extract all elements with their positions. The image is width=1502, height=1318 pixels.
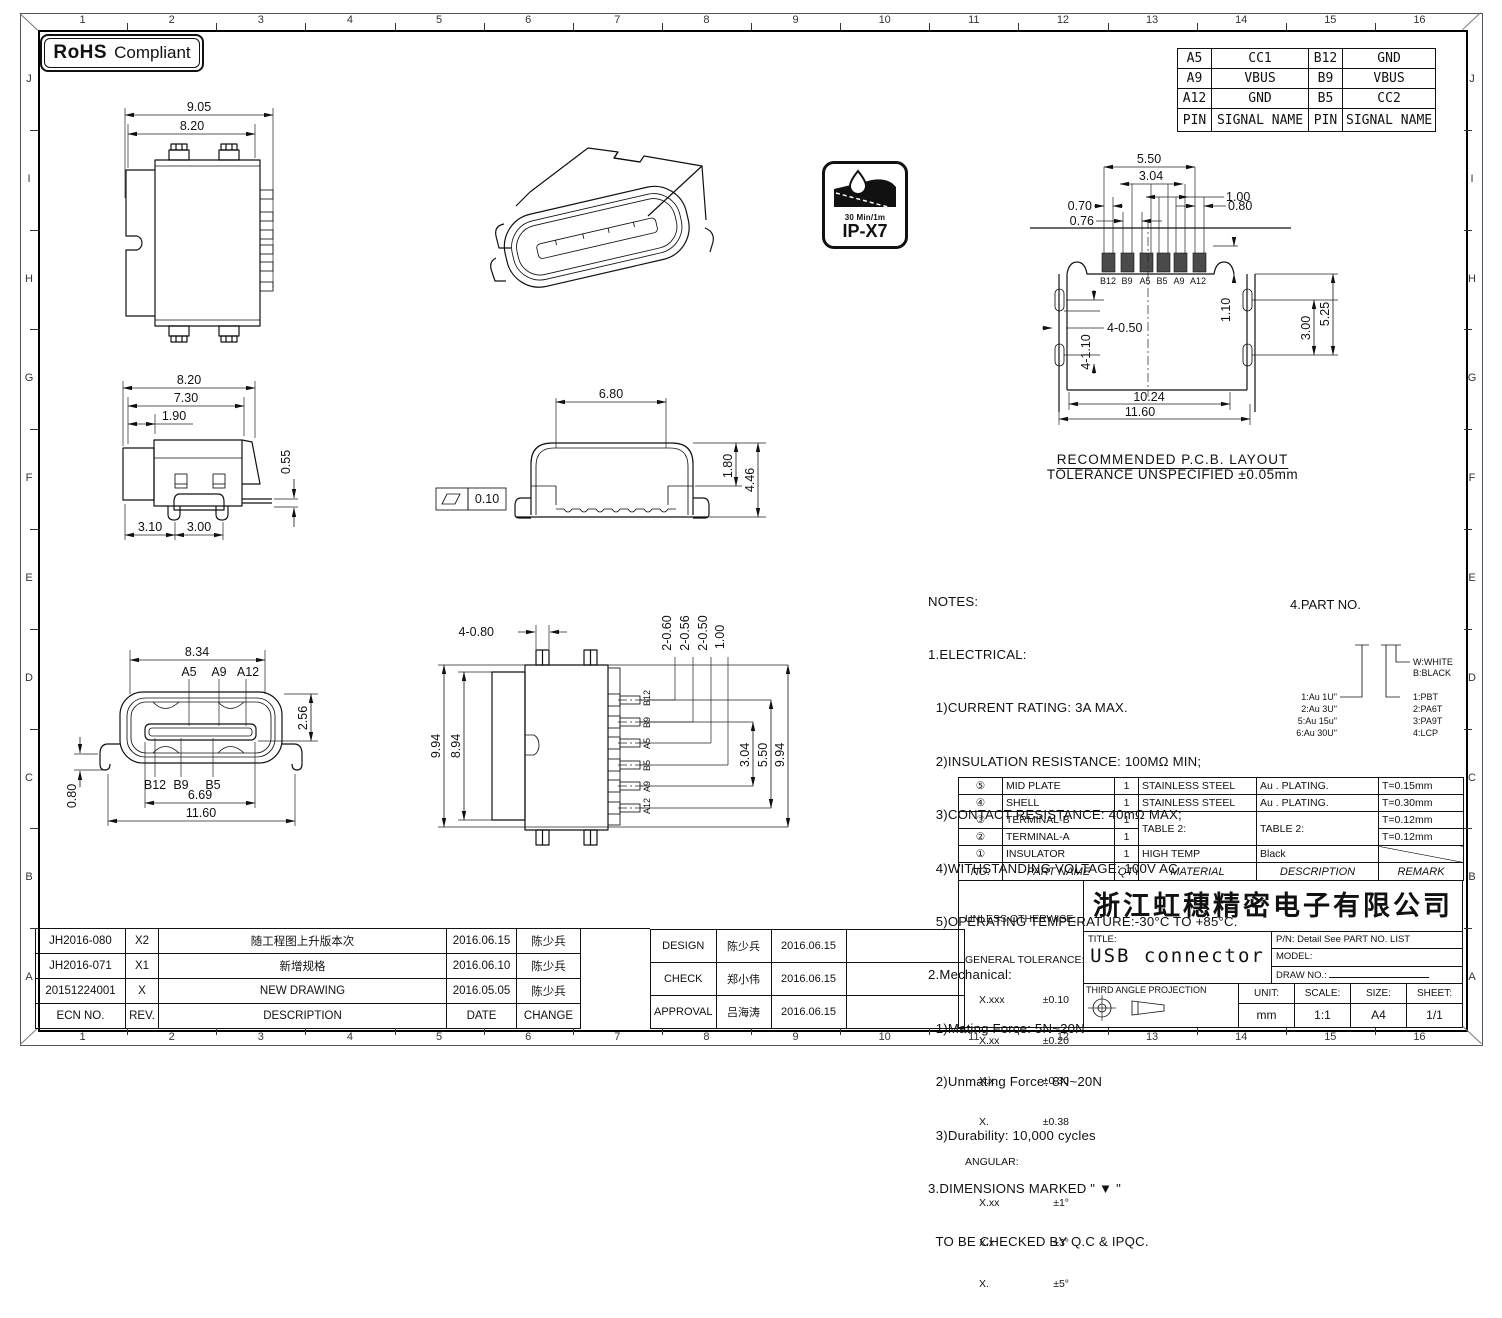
approval-table: DESIGN陈少兵2016.06.15 CHECK郑小伟2016.06.15 A…	[650, 929, 965, 1029]
pad-label: B12	[1100, 276, 1116, 286]
zone-tick	[1375, 1028, 1376, 1035]
draw-no-row: DRAW NO.:	[1272, 967, 1462, 983]
bom-remark: T=0.12mm	[1379, 829, 1464, 846]
approval-name: 郑小伟	[716, 963, 771, 996]
bom-material: TABLE 2:	[1139, 812, 1257, 846]
bom-header: NO.	[959, 863, 1003, 881]
tol-key: X.xxx	[979, 994, 1005, 1008]
dim-label: 2-0.60	[660, 615, 674, 650]
zone-number-bottom: 4	[341, 1031, 359, 1043]
rev-desc: 随工程图上升版本次	[159, 929, 447, 954]
zone-tick	[840, 23, 841, 30]
dim-label: 8.20	[177, 373, 201, 387]
dim-label: 3.10	[138, 520, 162, 534]
tol-val: ±1°	[1053, 1197, 1069, 1211]
pin-header: SIGNAL NAME	[1343, 109, 1436, 132]
pin-cell: B9	[1309, 69, 1343, 89]
dim-label: 2-0.56	[678, 615, 692, 650]
rev-desc: 新增规格	[159, 954, 447, 979]
rev-header: CHANGE	[517, 1004, 581, 1029]
approval-role: CHECK	[651, 963, 717, 996]
zone-tick	[30, 928, 38, 929]
zone-number-top: 1	[74, 14, 92, 26]
pin-cell: B12	[1309, 49, 1343, 69]
bom-header: REMARK	[1379, 863, 1464, 881]
zone-letter-right: A	[1463, 971, 1481, 983]
pin-header: PIN	[1178, 109, 1212, 132]
bom-part: TERMINAL-B	[1003, 812, 1115, 829]
pin-cell: A12	[1178, 89, 1212, 109]
zone-tick	[305, 1028, 306, 1035]
zone-tick	[573, 23, 574, 30]
ip-rating-label: IP-X7	[825, 222, 905, 240]
bom-material: STAINLESS STEEL	[1139, 795, 1257, 812]
zone-number-bottom: 10	[876, 1031, 894, 1043]
dim-label: 5.25	[1318, 302, 1332, 326]
pcb-layout-drawing: 5.50 3.04 1.00 0.70 0.80 0.76 1.10 4-0.5…	[1028, 142, 1393, 452]
bom-desc: Au . PLATING.	[1257, 795, 1379, 812]
bottom-view-drawing: 4-0.80 9.94 8.94 2-0.60 2-0.56 2-0.50 1.…	[428, 575, 793, 867]
dim-label: 4.46	[743, 468, 757, 492]
dim-label: 3.04	[738, 743, 752, 767]
zone-number-top: 11	[965, 14, 983, 26]
zone-tick	[305, 23, 306, 30]
rev-change: 陈少兵	[517, 929, 581, 954]
zone-tick	[1197, 1028, 1198, 1035]
legend-item: 6:Au 30U"	[1296, 728, 1337, 738]
size-value: A4	[1351, 1004, 1406, 1026]
zone-number-top: 13	[1143, 14, 1161, 26]
zone-number-bottom: 14	[1232, 1031, 1250, 1043]
tol-key: X.x	[979, 1075, 994, 1089]
zone-letter-right: H	[1463, 273, 1481, 285]
size-cell: SIZE: A4	[1351, 984, 1407, 1027]
zone-tick	[1464, 329, 1472, 330]
scale-value: 1:1	[1295, 1004, 1350, 1026]
zone-tick	[484, 1028, 485, 1035]
legend-item: 5:Au 15u"	[1298, 716, 1337, 726]
bom-part: INSULATOR	[1003, 846, 1115, 863]
dim-label: 1.90	[162, 409, 186, 423]
scale-cell: SCALE: 1:1	[1295, 984, 1351, 1027]
title-cell: TITLE: USB connector	[1084, 932, 1272, 983]
pin-label: B12	[642, 690, 652, 706]
pin-cell: VBUS	[1343, 69, 1436, 89]
zone-number-top: 6	[519, 14, 537, 26]
projection-label: THIRD ANGLE PROJECTION	[1086, 985, 1236, 995]
zone-number-top: 9	[787, 14, 805, 26]
dim-label: 10.24	[1133, 390, 1164, 404]
rev-ecn: 20151224001	[36, 979, 126, 1004]
part-no-title: 4.PART NO.	[1290, 597, 1361, 612]
dim-label: 9.05	[187, 100, 211, 114]
zone-letter-left: C	[20, 772, 38, 784]
rev-desc: NEW DRAWING	[159, 979, 447, 1004]
rohs-badge: RoHS Compliant	[40, 34, 204, 72]
bom-header: QTY	[1115, 863, 1139, 881]
zone-letter-left: F	[20, 472, 38, 484]
zone-tick	[216, 1028, 217, 1035]
zone-tick	[1464, 529, 1472, 530]
pad-label: A5	[1139, 276, 1150, 286]
pin-label: B9	[642, 717, 652, 728]
zone-number-top: 16	[1410, 14, 1428, 26]
dim-label: 0.80	[1228, 199, 1252, 213]
approval-empty	[846, 963, 964, 996]
bom-desc: Black	[1257, 846, 1379, 863]
approval-empty	[846, 996, 964, 1029]
pin-label: A9	[642, 781, 652, 792]
drawing-title: USB connector	[1088, 945, 1267, 967]
part-number-note: P/N: Detail See PART NO. LIST	[1272, 932, 1462, 949]
table-top-rule	[580, 928, 650, 929]
zone-tick	[30, 329, 38, 330]
unit-value: mm	[1239, 1004, 1294, 1026]
rev-ecn: JH2016-071	[36, 954, 126, 979]
zone-tick	[929, 1028, 930, 1035]
pin-cell: CC1	[1212, 49, 1309, 69]
note-line: 1.ELECTRICAL:	[928, 646, 1238, 664]
zone-number-bottom: 11	[965, 1031, 983, 1043]
bom-remark: T=0.12mm	[1379, 812, 1464, 829]
rev-ecn: JH2016-080	[36, 929, 126, 954]
zone-tick	[929, 23, 930, 30]
dim-label: 11.60	[186, 806, 216, 820]
pin-header: PIN	[1309, 109, 1343, 132]
dim-label: 0.55	[279, 450, 293, 474]
zone-number-bottom: 5	[430, 1031, 448, 1043]
sheet-value: 1/1	[1407, 1004, 1462, 1026]
zone-tick	[30, 629, 38, 630]
approval-role: DESIGN	[651, 930, 717, 963]
zone-letter-right: I	[1463, 173, 1481, 185]
bom-material: HIGH TEMP	[1139, 846, 1257, 863]
pin-label: B5	[642, 760, 652, 771]
zone-number-bottom: 1	[74, 1031, 92, 1043]
zone-tick	[30, 729, 38, 730]
zone-number-top: 7	[608, 14, 626, 26]
zone-tick	[1464, 429, 1472, 430]
rev-change: 陈少兵	[517, 954, 581, 979]
bom-part: MID PLATE	[1003, 778, 1115, 795]
zone-tick	[30, 130, 38, 131]
tol-key: X.x	[979, 1237, 994, 1251]
bom-header: MATERIAL	[1139, 863, 1257, 881]
bom-no: ④	[959, 795, 1003, 812]
zone-tick	[216, 23, 217, 30]
pin-header: SIGNAL NAME	[1212, 109, 1309, 132]
zone-letter-left: G	[20, 372, 38, 384]
bom-table: ⑤MID PLATE1STAINLESS STEELAu . PLATING.T…	[958, 777, 1464, 881]
dim-label: 3.00	[1299, 316, 1313, 340]
legend-item: 1:PBT	[1413, 692, 1439, 702]
rev-date: 2016.06.15	[447, 929, 517, 954]
rev-header: REV.	[126, 1004, 159, 1029]
pin-label: A5	[642, 738, 652, 749]
zone-number-top: 3	[252, 14, 270, 26]
zone-number-bottom: 9	[787, 1031, 805, 1043]
zone-letter-left: A	[20, 971, 38, 983]
pcb-caption-title: RECOMMENDED P.C.B. LAYOUT	[1000, 452, 1345, 467]
pad-label: A9	[1173, 276, 1184, 286]
bom-remark: T=0.15mm	[1379, 778, 1464, 795]
zone-number-top: 14	[1232, 14, 1250, 26]
dim-label: 4-0.80	[459, 625, 494, 639]
third-angle-projection-icon	[1086, 995, 1176, 1021]
dim-label: 1.00	[713, 625, 727, 649]
rev-header: ECN NO.	[36, 1004, 126, 1029]
pcb-layout-caption: RECOMMENDED P.C.B. LAYOUT TOLERANCE UNSP…	[1000, 452, 1345, 482]
tolerance-block: UNLESS OTHERWISE, GENERAL TOLERANCE: X.x…	[959, 881, 1084, 1027]
dim-label: 9.94	[429, 734, 443, 758]
zone-tick	[1108, 23, 1109, 30]
pin-cell: B5	[1309, 89, 1343, 109]
zone-tick	[1464, 729, 1472, 730]
zone-tick	[662, 1028, 663, 1035]
zone-tick	[30, 429, 38, 430]
tolerance-angular-label: ANGULAR:	[965, 1156, 1079, 1170]
zone-tick	[395, 1028, 396, 1035]
tolerance-header: GENERAL TOLERANCE:	[965, 954, 1079, 968]
zone-letter-right: G	[1463, 372, 1481, 384]
revision-table: JH2016-080X2随工程图上升版本次2016.06.15陈少兵 JH201…	[35, 928, 581, 1029]
bom-header: PART NAME	[1003, 863, 1115, 881]
legend-item: W:WHITE	[1413, 657, 1453, 667]
bom-no: ②	[959, 829, 1003, 846]
dim-label: 4-0.50	[1107, 321, 1142, 335]
note-line: 1)CURRENT RATING: 3A MAX.	[928, 699, 1238, 717]
rev-rev: X	[126, 979, 159, 1004]
tol-val: ±0.38	[1043, 1116, 1069, 1130]
pcb-caption-subtitle: TOLERANCE UNSPECIFIED ±0.05mm	[1000, 467, 1345, 482]
bom-material: STAINLESS STEEL	[1139, 778, 1257, 795]
bom-qty: 1	[1115, 795, 1139, 812]
zone-number-bottom: 2	[163, 1031, 181, 1043]
zone-tick	[30, 230, 38, 231]
dim-label: 6.80	[599, 387, 623, 401]
zone-tick	[1464, 828, 1472, 829]
zone-number-top: 2	[163, 14, 181, 26]
dim-label: 1.10	[1219, 298, 1233, 322]
legend-item: 3:PA9T	[1413, 716, 1443, 726]
zone-tick	[573, 1028, 574, 1035]
bom-qty: 1	[1115, 846, 1139, 863]
zone-tick	[751, 23, 752, 30]
legend-item: 2:Au 3U"	[1301, 704, 1337, 714]
dim-label: 11.60	[1125, 405, 1155, 419]
dim-label: 0.70	[1068, 199, 1092, 213]
zone-tick	[1464, 130, 1472, 131]
zone-number-top: 8	[697, 14, 715, 26]
approval-role: APPROVAL	[651, 996, 717, 1029]
isometric-view-drawing	[468, 132, 733, 304]
pin-label: A12	[237, 665, 259, 679]
zone-tick	[127, 1028, 128, 1035]
zone-letter-right: D	[1463, 672, 1481, 684]
bom-part: SHELL	[1003, 795, 1115, 812]
zone-tick	[1464, 230, 1472, 231]
bom-desc: TABLE 2:	[1257, 812, 1379, 846]
ipx7-badge: 30 Min/1m IP-X7	[822, 161, 908, 249]
zone-number-top: 15	[1321, 14, 1339, 26]
dim-label: 5.50	[756, 743, 770, 767]
zone-tick	[484, 23, 485, 30]
zone-letter-left: D	[20, 672, 38, 684]
approval-date: 2016.06.15	[771, 996, 846, 1029]
unit-cell: UNIT: mm	[1239, 984, 1295, 1027]
pin-label: A12	[642, 798, 652, 814]
dim-label: 0.80	[65, 784, 79, 808]
tol-val: ±0.30	[1043, 1075, 1069, 1089]
sheet-label: SHEET:	[1407, 984, 1462, 1004]
bom-remark: T=0.30mm	[1379, 795, 1464, 812]
approval-date: 2016.06.15	[771, 963, 846, 996]
sheet-cell: SHEET: 1/1	[1407, 984, 1462, 1027]
zone-tick	[127, 23, 128, 30]
zone-tick	[1018, 1028, 1019, 1035]
zone-number-top: 5	[430, 14, 448, 26]
zone-number-top: 10	[876, 14, 894, 26]
legend-item: B:BLACK	[1413, 668, 1451, 678]
dim-label: 5.50	[1137, 152, 1161, 166]
dim-label: 3.04	[1139, 169, 1163, 183]
zone-tick	[1286, 1028, 1287, 1035]
zone-letter-left: I	[20, 173, 38, 185]
bom-qty: 1	[1115, 778, 1139, 795]
engineering-drawing-page: { "frame": { "zone_numbers": ["1","2","3…	[0, 0, 1502, 1059]
pin-cell: GND	[1343, 49, 1436, 69]
zone-number-bottom: 3	[252, 1031, 270, 1043]
unit-label: UNIT:	[1239, 984, 1294, 1004]
pin-cell: A5	[1178, 49, 1212, 69]
pin-label: A5	[181, 665, 196, 679]
bom-remark-slash	[1379, 846, 1464, 863]
tol-val: ±0.10	[1043, 994, 1069, 1008]
zone-number-bottom: 15	[1321, 1031, 1339, 1043]
rev-date: 2016.05.05	[447, 979, 517, 1004]
zone-tick	[1197, 23, 1198, 30]
rev-date: 2016.06.10	[447, 954, 517, 979]
bom-qty: 1	[1115, 829, 1139, 846]
side-view-drawing: 8.20 7.30 1.90 0.55 3.10 3.00	[98, 372, 353, 552]
legend-item: 2:PA6T	[1413, 704, 1443, 714]
zone-letter-left: B	[20, 871, 38, 883]
size-label: SIZE:	[1351, 984, 1406, 1004]
zone-tick	[1375, 23, 1376, 30]
zone-number-top: 4	[341, 14, 359, 26]
zone-number-top: 12	[1054, 14, 1072, 26]
zone-number-bottom: 13	[1143, 1031, 1161, 1043]
dim-label: 8.34	[185, 645, 209, 659]
note-line: NOTES:	[928, 593, 1238, 611]
tol-key: X.	[979, 1278, 989, 1292]
dim-label: 6.69	[188, 788, 212, 802]
dim-label: 4-1.10	[1079, 334, 1093, 369]
zone-number-bottom: 12	[1054, 1031, 1072, 1043]
pin-label: A9	[211, 665, 226, 679]
dim-label: 2.56	[296, 706, 310, 730]
tol-key: X.	[979, 1116, 989, 1130]
tol-key: X.xx	[979, 1197, 999, 1211]
pin-label: B9	[173, 778, 188, 792]
zone-letter-right: E	[1463, 572, 1481, 584]
scale-label: SCALE:	[1295, 984, 1350, 1004]
waterproof-icon	[828, 167, 902, 213]
dim-label: 0.76	[1070, 214, 1094, 228]
flatness-value: 0.10	[475, 492, 499, 506]
dim-label: 8.20	[180, 119, 204, 133]
note-line: 2)INSULATION RESISTANCE: 100MΩ MIN;	[928, 753, 1238, 771]
pin-cell: VBUS	[1212, 69, 1309, 89]
pin-cell: A9	[1178, 69, 1212, 89]
rev-rev: X2	[126, 929, 159, 954]
bom-part: TERMINAL-A	[1003, 829, 1115, 846]
pin-cell: CC2	[1343, 89, 1436, 109]
legend-item: 1:Au 1U"	[1301, 692, 1337, 702]
projection-cell: THIRD ANGLE PROJECTION	[1084, 984, 1239, 1027]
bom-no: ③	[959, 812, 1003, 829]
zone-letter-right: F	[1463, 472, 1481, 484]
zone-tick	[840, 1028, 841, 1035]
rev-rev: X1	[126, 954, 159, 979]
zone-letter-left: E	[20, 572, 38, 584]
title-label: TITLE:	[1088, 934, 1267, 945]
front-view-drawing: 8.34 A5 A9 A12 2.56 0.80 B12 B9 B5 6.69 …	[58, 638, 363, 853]
dim-label: 1.80	[721, 454, 735, 478]
zone-letter-left: J	[20, 73, 38, 85]
pin-label: B12	[144, 778, 166, 792]
bom-no: ①	[959, 846, 1003, 863]
tolerance-header: UNLESS OTHERWISE,	[965, 913, 1079, 927]
zone-tick	[30, 828, 38, 829]
zone-tick	[30, 529, 38, 530]
note-line: 3.DIMENSIONS MARKED " ▼ "	[928, 1180, 1238, 1198]
dim-label: 8.94	[449, 734, 463, 758]
pin-signal-table: A5CC1B12GND A9VBUSB9VBUS A12GNDB5CC2 PIN…	[1177, 48, 1436, 132]
draw-no-label: DRAW NO.:	[1276, 970, 1327, 981]
rev-change: 陈少兵	[517, 979, 581, 1004]
zone-letter-right: J	[1463, 73, 1481, 85]
bom-no: ⑤	[959, 778, 1003, 795]
zone-number-bottom: 16	[1410, 1031, 1428, 1043]
front-section-drawing: 6.80 1.80 4.46 0.10	[428, 380, 778, 565]
bom-qty: 1	[1115, 812, 1139, 829]
zone-tick	[751, 1028, 752, 1035]
approval-empty	[846, 930, 964, 963]
zone-letter-right: B	[1463, 871, 1481, 883]
rev-header: DESCRIPTION	[159, 1004, 447, 1029]
zone-letter-left: H	[20, 273, 38, 285]
tol-val: ±5°	[1053, 1278, 1069, 1292]
pin-cell: GND	[1212, 89, 1309, 109]
rev-header: DATE	[447, 1004, 517, 1029]
bom-desc: Au . PLATING.	[1257, 778, 1379, 795]
dim-label: 3.00	[187, 520, 211, 534]
zone-number-bottom: 7	[608, 1031, 626, 1043]
approval-date: 2016.06.15	[771, 930, 846, 963]
dim-label: 2-0.50	[696, 615, 710, 650]
zone-tick	[1018, 23, 1019, 30]
zone-tick	[1464, 928, 1472, 929]
bom-header: DESCRIPTION	[1257, 863, 1379, 881]
company-name: 浙江虹穗精密电子有限公司	[1084, 881, 1462, 932]
zone-tick	[662, 23, 663, 30]
zone-tick	[1464, 629, 1472, 630]
note-line: 3)Durability: 10,000 cycles	[928, 1127, 1238, 1145]
model-label: MODEL:	[1272, 949, 1462, 967]
pad-label: B9	[1121, 276, 1132, 286]
approval-name: 陈少兵	[716, 930, 771, 963]
